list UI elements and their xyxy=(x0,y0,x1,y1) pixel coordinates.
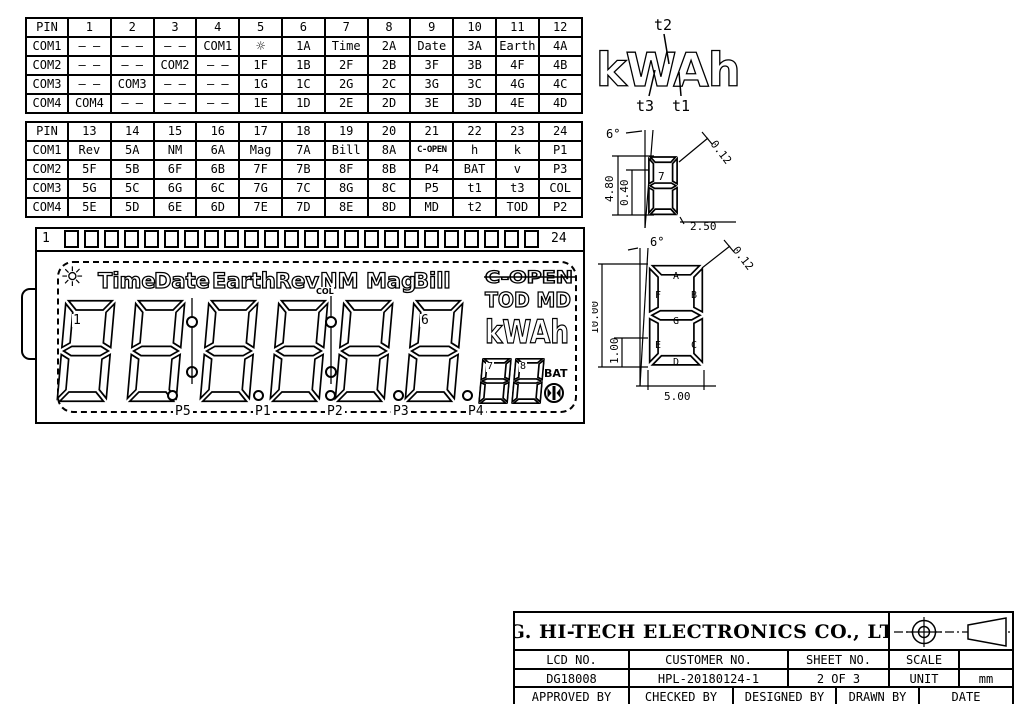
pin-table-1-cell-r1-c0: COM1 xyxy=(26,37,68,56)
approved-by-cell: APPROVED BY xyxy=(515,688,630,704)
inner-dim: 0.40 xyxy=(618,180,631,207)
pin-table-1-cell-r0-c0: PIN xyxy=(26,18,68,37)
scale-label-cell: SCALE xyxy=(890,651,960,669)
pin-pad-18 xyxy=(404,230,419,248)
p3-label: P3 xyxy=(391,405,411,419)
pin-table-1-cell-r2-c8: 2B xyxy=(368,56,411,75)
pin-table-1-cell-r2-c12: 4B xyxy=(539,56,582,75)
pin-table-1-cell-r0-c2: 2 xyxy=(111,18,154,37)
pin-table-2-cell-r2-c5: 7F xyxy=(239,160,282,179)
lcd-engineering-drawing-sheet: PIN123456789101112COM1– –– –– –COM1☼1ATi… xyxy=(0,0,1024,704)
decimal-point-p5 xyxy=(167,390,178,401)
company-name-cell: D.G. HI-TECH ELECTRONICS CO., LTD. xyxy=(515,613,890,651)
pin-table-1-cell-r1-c3: – – xyxy=(154,37,197,56)
pin-table-1-cell-r4-c8: 2D xyxy=(368,94,411,113)
pin-table-2-cell-r3-c2: 5C xyxy=(111,179,154,198)
width-dim: 2.50 xyxy=(690,220,717,233)
digit-8-position-note: 8 xyxy=(519,362,527,372)
p5-label: P5 xyxy=(173,405,193,419)
pin-assignment-table-1: PIN123456789101112COM1– –– –– –COM1☼1ATi… xyxy=(25,17,583,114)
pin-table-2-cell-r4-c7: 8E xyxy=(325,198,368,217)
pin-table-1-cell-r1-c2: – – xyxy=(111,37,154,56)
pin-table-1-cell-r2-c6: 1B xyxy=(282,56,325,75)
pin-table-1-cell-r2-c3: COM2 xyxy=(154,56,197,75)
pin-table-2-cell-r1-c0: COM1 xyxy=(26,141,68,160)
battery-segment-label: BAT xyxy=(544,367,568,380)
pin-pad-19 xyxy=(424,230,439,248)
pin-table-1-cell-r0-c12: 12 xyxy=(539,18,582,37)
pin-table-2-cell-r1-c7: Bill xyxy=(325,141,368,160)
pin-table-1-cell-r4-c9: 3E xyxy=(410,94,453,113)
pin-table-1-cell-r1-c6: 1A xyxy=(282,37,325,56)
pin-table-1-cell-r2-c2: – – xyxy=(111,56,154,75)
pin-table-2-cell-r0-c5: 17 xyxy=(239,122,282,141)
annunciator-rev: Rev xyxy=(275,269,319,293)
seven-segment-digit-8 xyxy=(511,358,545,404)
pin-table-2-cell-r3-c11: t3 xyxy=(496,179,539,198)
pin-table-2-cell-r2-c9: P4 xyxy=(410,160,453,179)
pin-table-1-cell-r3-c4: – – xyxy=(196,75,239,94)
pin-table-2-cell-r3-c6: 7C xyxy=(282,179,325,198)
seven-segment-digit-4 xyxy=(268,299,329,403)
pin-table-2-cell-r3-c12: COL xyxy=(539,179,582,198)
pin-table-2-cell-r2-c12: P3 xyxy=(539,160,582,179)
pin-pad-24 xyxy=(524,230,539,248)
seven-segment-digit-6 xyxy=(403,299,464,403)
seven-segment-digit-3 xyxy=(198,299,259,403)
pin-table-1-cell-r2-c5: 1F xyxy=(239,56,282,75)
pin-table-2-cell-r2-c1: 5F xyxy=(68,160,111,179)
lcd-no-value-cell: DG18008 xyxy=(515,670,630,687)
drawn-by-cell: DRAWN BY xyxy=(837,688,920,704)
pin-table-1-cell-r4-c10: 3D xyxy=(453,94,496,113)
pin-table-1-cell-r0-c3: 3 xyxy=(154,18,197,37)
annunciator-mag: Mag xyxy=(366,269,416,293)
date-cell: DATE xyxy=(920,688,1012,704)
pin-table-2-cell-r3-c5: 7G xyxy=(239,179,282,198)
scale-value-cell xyxy=(960,651,1012,669)
pin-table-2-cell-r3-c1: 5G xyxy=(68,179,111,198)
pin-table-2-cell-r1-c3: NM xyxy=(154,141,197,160)
pin-table-1-cell-r3-c2: COM3 xyxy=(111,75,154,94)
p2-label: P2 xyxy=(325,405,345,419)
company-name: D.G. HI-TECH ELECTRONICS CO., LTD. xyxy=(515,621,890,643)
pin-pad-7 xyxy=(184,230,199,248)
pin-table-1-cell-r1-c11: Earth xyxy=(496,37,539,56)
pin-table-2-cell-r2-c6: 7B xyxy=(282,160,325,179)
pin-table-1-cell-r1-c12: 4A xyxy=(539,37,582,56)
pin-pad-21 xyxy=(464,230,479,248)
decimal-point-p4 xyxy=(462,390,473,401)
decimal-point-p1 xyxy=(253,390,264,401)
pin-strip-first-number: 1 xyxy=(42,231,50,246)
pin-table-1-cell-r4-c11: 4E xyxy=(496,94,539,113)
seven-segment-digit-2 xyxy=(125,299,186,403)
kwah-segment-diagram: kWAh t2 t3 t1 xyxy=(592,10,750,116)
pin-table-2-cell-r3-c9: P5 xyxy=(410,179,453,198)
pin-table-2-cell-r1-c4: 6A xyxy=(196,141,239,160)
pin-table-2-cell-r0-c9: 21 xyxy=(410,122,453,141)
pin-table-2-cell-r0-c8: 20 xyxy=(368,122,411,141)
pin-table-1-cell-r2-c4: – – xyxy=(196,56,239,75)
pin-pad-4 xyxy=(124,230,139,248)
pin-table-2-cell-r4-c4: 6D xyxy=(196,198,239,217)
p1-label: P1 xyxy=(253,405,273,419)
pin-table-2-cell-r0-c12: 24 xyxy=(539,122,582,141)
customer-no-value-cell: HPL-20180124-1 xyxy=(630,670,789,687)
annunciator-earth: Earth xyxy=(212,269,276,293)
pin-table-2-cell-r4-c6: 7D xyxy=(282,198,325,217)
pin-table-2-cell-r2-c0: COM2 xyxy=(26,160,68,179)
pin-table-1-cell-r2-c7: 2F xyxy=(325,56,368,75)
sheet-no-value-cell: 2 OF 3 xyxy=(789,670,890,687)
t1-label: t1 xyxy=(672,97,690,115)
segment-d-label: D xyxy=(673,357,679,368)
pin-table-2-cell-r4-c8: 8D xyxy=(368,198,411,217)
annunciator-time: Time xyxy=(98,269,156,293)
pin-table-1-cell-r0-c4: 4 xyxy=(196,18,239,37)
pin-table-2-cell-r3-c7: 8G xyxy=(325,179,368,198)
title-block: D.G. HI-TECH ELECTRONICS CO., LTD. LCD N… xyxy=(513,611,1014,704)
pin-pad-6 xyxy=(164,230,179,248)
pin-table-1-cell-r0-c9: 9 xyxy=(410,18,453,37)
angle-dim: 6° xyxy=(606,127,620,141)
pin-table-2-cell-r0-c4: 16 xyxy=(196,122,239,141)
pin-table-1-cell-r3-c3: – – xyxy=(154,75,197,94)
segment-b-label: B xyxy=(691,290,697,301)
pin-table-1-cell-r4-c3: – – xyxy=(154,94,197,113)
pin-table-1-cell-r4-c5: 1E xyxy=(239,94,282,113)
seven-segment-digit-1 xyxy=(55,299,116,403)
pin-table-1-cell-r1-c10: 3A xyxy=(453,37,496,56)
lcd-no-label-cell: LCD NO. xyxy=(515,651,630,669)
pin-table-2-cell-r4-c1: 5E xyxy=(68,198,111,217)
annunciator-row: Time Date Earth Rev NM Mag Bill xyxy=(56,264,476,296)
pin-table-2-cell-r3-c8: 8C xyxy=(368,179,411,198)
customer-no-label-cell: CUSTOMER NO. xyxy=(630,651,789,669)
pin-table-2-cell-r4-c2: 5D xyxy=(111,198,154,217)
pin-table-2-cell-r1-c1: Rev xyxy=(68,141,111,160)
unit-label-cell: UNIT xyxy=(890,670,960,687)
small-digit-dimension-drawing: 6° 7 4.80 0.40 0.12 2.50 xyxy=(596,122,791,234)
pin-pad-13 xyxy=(304,230,319,248)
pin-table-2-cell-r0-c6: 18 xyxy=(282,122,325,141)
colon-segment-right xyxy=(323,296,339,388)
pin-table-2-cell-r3-c3: 6G xyxy=(154,179,197,198)
height-dim: 10.00 xyxy=(592,301,601,334)
pin-table-1-cell-r3-c0: COM3 xyxy=(26,75,68,94)
pin-table-2-cell-r0-c11: 23 xyxy=(496,122,539,141)
pin-pad-12 xyxy=(284,230,299,248)
pin-table-2-cell-r2-c2: 5B xyxy=(111,160,154,179)
pin-table-2-cell-r0-c2: 14 xyxy=(111,122,154,141)
pin-table-1-cell-r4-c2: – – xyxy=(111,94,154,113)
pin-table-1-cell-r4-c0: COM4 xyxy=(26,94,68,113)
decimal-point-p3 xyxy=(393,390,404,401)
pin-pad-9 xyxy=(224,230,239,248)
segment-g-label: G xyxy=(673,316,679,327)
pin-table-2-cell-r0-c0: PIN xyxy=(26,122,68,141)
pin-pad-20 xyxy=(444,230,459,248)
pin-table-1-cell-r4-c7: 2E xyxy=(325,94,368,113)
pin-pad-5 xyxy=(144,230,159,248)
pin-table-2-cell-r4-c10: t2 xyxy=(453,198,496,217)
pin-table-1-cell-r4-c6: 1D xyxy=(282,94,325,113)
kwah-outline-word: kWAh xyxy=(596,43,740,97)
height-dim: 4.80 xyxy=(603,176,616,203)
pin-pad-10 xyxy=(244,230,259,248)
designed-by-cell: DESIGNED BY xyxy=(734,688,837,704)
pin-pad-3 xyxy=(104,230,119,248)
t3-label: t3 xyxy=(636,97,654,115)
pin-pad-11 xyxy=(264,230,279,248)
pin-table-1-cell-r2-c9: 3F xyxy=(410,56,453,75)
pin-pad-17 xyxy=(384,230,399,248)
pin-pad-1 xyxy=(64,230,79,248)
pin-table-1-cell-r4-c4: – – xyxy=(196,94,239,113)
p4-label: P4 xyxy=(466,405,486,419)
projection-symbol-icon xyxy=(890,615,1012,649)
colon-segment-left xyxy=(184,296,200,388)
pin-table-2-cell-r2-c10: BAT xyxy=(453,160,496,179)
pin-table-2-cell-r2-c11: v xyxy=(496,160,539,179)
pin-table-2-cell-r0-c7: 19 xyxy=(325,122,368,141)
pin-table-2-cell-r1-c5: Mag xyxy=(239,141,282,160)
annunciator-date: Date xyxy=(154,269,210,293)
pin-pad-15 xyxy=(344,230,359,248)
pin-table-1-cell-r0-c1: 1 xyxy=(68,18,111,37)
pin-table-2-cell-r1-c9: C-OPEN xyxy=(410,141,453,160)
pin-table-1-cell-r1-c8: 2A xyxy=(368,37,411,56)
pin-table-1-cell-r3-c5: 1G xyxy=(239,75,282,94)
pin-pad-8 xyxy=(204,230,219,248)
battery-icon xyxy=(543,382,565,404)
pin-pad-16 xyxy=(364,230,379,248)
pin-table-2-cell-r0-c1: 13 xyxy=(68,122,111,141)
checked-by-cell: CHECKED BY xyxy=(630,688,734,704)
pin-table-1-cell-r2-c1: – – xyxy=(68,56,111,75)
angle-dim: 6° xyxy=(650,235,664,249)
pin-table-1-cell-r4-c1: COM4 xyxy=(68,94,111,113)
pin-table-1-cell-r1-c4: COM1 xyxy=(196,37,239,56)
pin-table-1-cell-r3-c11: 4G xyxy=(496,75,539,94)
pin-table-1-cell-r0-c6: 6 xyxy=(282,18,325,37)
pin-table-2-cell-r0-c3: 15 xyxy=(154,122,197,141)
segment-a-label: A xyxy=(673,271,679,282)
pin-table-1-cell-r0-c7: 7 xyxy=(325,18,368,37)
pin-table-2-cell-r3-c0: COM3 xyxy=(26,179,68,198)
gap-dim: 0.12 xyxy=(708,138,735,167)
digit-7-position-note: 7 xyxy=(486,362,494,372)
annunciator-c-open: C-OPEN xyxy=(485,268,573,288)
pin-table-2-cell-r4-c5: 7E xyxy=(239,198,282,217)
pin-table-1-cell-r3-c6: 1C xyxy=(282,75,325,94)
digit-6-position-note: 6 xyxy=(420,314,430,327)
pin-table-1-cell-r3-c7: 2G xyxy=(325,75,368,94)
digit-1-position-note: 1 xyxy=(72,314,82,327)
pin-table-2-cell-r1-c12: P1 xyxy=(539,141,582,160)
pin-strip-divider xyxy=(37,250,583,252)
pin-table-2-cell-r2-c8: 8B xyxy=(368,160,411,179)
pin-table-1-cell-r3-c1: – – xyxy=(68,75,111,94)
pin-table-1-cell-r0-c10: 10 xyxy=(453,18,496,37)
pin-table-2-cell-r2-c4: 6B xyxy=(196,160,239,179)
segment-c-label: C xyxy=(691,340,697,351)
pin-table-1-cell-r4-c12: 4D xyxy=(539,94,582,113)
pin-pad-23 xyxy=(504,230,519,248)
gap-dim: 0.12 xyxy=(730,244,757,273)
pin-table-1-cell-r0-c8: 8 xyxy=(368,18,411,37)
annunciator-tod-md: TOD MD xyxy=(485,288,571,312)
pin-table-2-cell-r4-c9: MD xyxy=(410,198,453,217)
pin-assignment-table-2: PIN131415161718192021222324COM1Rev5ANM6A… xyxy=(25,121,583,218)
pin-table-2-cell-r4-c0: COM4 xyxy=(26,198,68,217)
pin-table-2-cell-r2-c7: 8F xyxy=(325,160,368,179)
pin-pad-14 xyxy=(324,230,339,248)
pin-table-1-cell-r3-c10: 3C xyxy=(453,75,496,94)
pin-table-1-cell-r1-c1: – – xyxy=(68,37,111,56)
width-dim: 5.00 xyxy=(664,390,691,403)
pin-pad-22 xyxy=(484,230,499,248)
pin-table-2-cell-r1-c2: 5A xyxy=(111,141,154,160)
digit-position-label: 7 xyxy=(658,170,665,183)
pin-table-1-cell-r3-c12: 4C xyxy=(539,75,582,94)
segment-f-label: F xyxy=(655,290,661,301)
large-digit-dimension-drawing: 6° 10.00 1.00 0.12 5.00 A F B G E C D xyxy=(592,234,792,404)
pin-table-1-cell-r3-c8: 2C xyxy=(368,75,411,94)
pin-pad-2 xyxy=(84,230,99,248)
pin-table-1-cell-r2-c11: 4F xyxy=(496,56,539,75)
small-digit-outline xyxy=(649,157,677,214)
col-segment-label: COL xyxy=(316,287,334,296)
pin-table-1-cell-r1-c5: ☼ xyxy=(239,37,282,56)
pin-table-1-cell-r0-c5: 5 xyxy=(239,18,282,37)
t2-label: t2 xyxy=(654,16,672,34)
pin-table-2-cell-r1-c11: k xyxy=(496,141,539,160)
pin-table-2-cell-r0-c10: 22 xyxy=(453,122,496,141)
pin-table-1-cell-r2-c10: 3B xyxy=(453,56,496,75)
pin-pad-strip xyxy=(64,230,546,248)
pin-table-2-cell-r4-c3: 6E xyxy=(154,198,197,217)
pin-table-2-cell-r2-c3: 6F xyxy=(154,160,197,179)
annunciator-kwah: kWAh xyxy=(485,313,569,351)
pin-table-2-cell-r4-c12: P2 xyxy=(539,198,582,217)
pin-table-2-cell-r1-c6: 7A xyxy=(282,141,325,160)
inner-dim: 1.00 xyxy=(608,338,621,365)
decimal-point-p2 xyxy=(325,390,336,401)
pin-strip-last-number: 24 xyxy=(551,231,567,246)
unit-value-cell: mm xyxy=(960,670,1012,687)
pin-table-1-cell-r1-c9: Date xyxy=(410,37,453,56)
pin-table-2-cell-r1-c10: h xyxy=(453,141,496,160)
segment-e-label: E xyxy=(655,340,661,351)
pin-table-1-cell-r2-c0: COM2 xyxy=(26,56,68,75)
annunciator-bill: Bill xyxy=(413,269,451,293)
pin-table-2-cell-r3-c4: 6C xyxy=(196,179,239,198)
seven-segment-digit-7 xyxy=(478,358,512,404)
pin-table-1-cell-r0-c11: 11 xyxy=(496,18,539,37)
pin-table-2-cell-r1-c8: 8A xyxy=(368,141,411,160)
right-annunciator-column: C-OPEN TOD MD kWAh xyxy=(484,266,578,358)
projection-symbol-cell xyxy=(890,613,1012,651)
seven-segment-digit-5 xyxy=(333,299,394,403)
pin-table-2-cell-r3-c10: t1 xyxy=(453,179,496,198)
pin-table-1-cell-r3-c9: 3G xyxy=(410,75,453,94)
pin-table-1-cell-r1-c7: Time xyxy=(325,37,368,56)
sheet-no-label-cell: SHEET NO. xyxy=(789,651,890,669)
pin-table-2-cell-r4-c11: TOD xyxy=(496,198,539,217)
